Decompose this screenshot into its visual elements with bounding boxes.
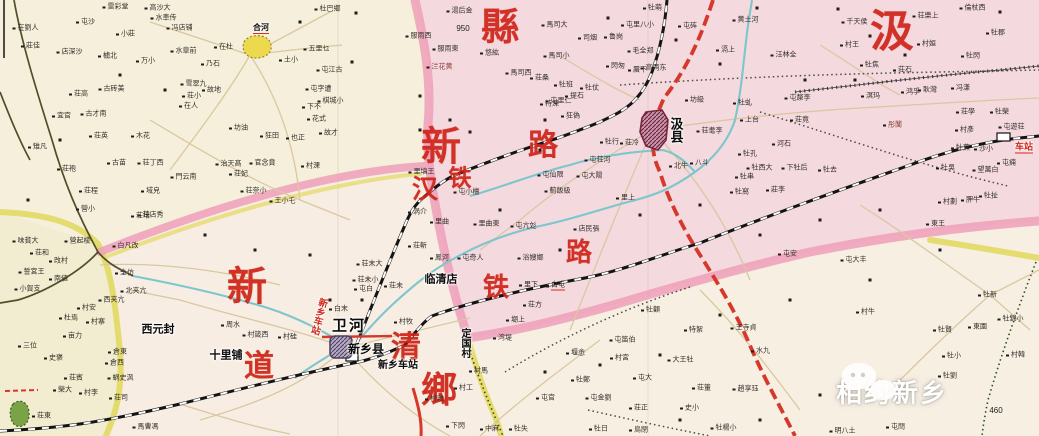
village-label: 故地 [207,87,221,94]
village-label: 牡孔 [743,151,757,158]
village-label: 村牧 [399,319,413,326]
village-label: 屯里八小 [626,22,654,29]
village-label: 大王牡 [673,357,694,364]
village-label: 屯笛伯 [615,337,636,344]
village-label: 古砖美 [104,86,125,93]
village-dot [544,371,547,374]
village-label: 村劃 [943,199,957,206]
village-label: 司烟 [583,35,597,42]
village-label: 荘高 [74,91,88,98]
place-label: 定国村 [459,328,469,358]
village-dot [164,89,167,92]
village-label: 望萬白 [978,167,999,174]
village-dot [329,299,332,302]
railway-county-big-label: 新 [421,127,461,167]
village-label: 荘桑 [535,75,549,82]
village-label: 湯后金 [452,8,473,15]
village-label: 西夹亢 [104,297,125,304]
village-dot [759,234,762,237]
village-label: 南値 [54,276,68,283]
village-dot [607,17,610,20]
village-label: 誓宮王 [24,269,45,276]
village-label: 牡顴 [646,307,660,314]
village-label: 牡小 [947,353,961,360]
village-dot [789,299,792,302]
village-label: 水車传 [156,15,177,22]
village-label: 也正 [291,135,305,142]
village-label: 牡扯 [984,193,998,200]
village-label: 在劉人 [18,25,39,32]
village-label: 㳕花黄 [432,64,453,71]
village-label: 故才 [324,130,338,137]
village-dot [869,279,872,282]
village-label: 古才南 [86,111,107,118]
railway-county-big-label: 道 [244,352,274,382]
village-label: 屯亢彣 [516,223,537,230]
railway-county-big-label: 縣 [481,9,519,47]
village-label: 店民張 [579,226,600,233]
village-label: 蜗史沨 [113,375,134,382]
village-dot [679,419,682,422]
historical-map: 縣汲新路铁汉路铁新清道鄉西元封十里铺卫河新乡县新乡车站临清店定国村汲县新乡车站车… [0,0,1039,436]
village-dot [699,204,702,207]
village-label: 服雨東 [438,46,459,53]
village-label: 提石 [570,93,584,100]
village-label: 牡串 [740,174,754,181]
village-label: 牡班 [559,82,573,89]
village-label: 村馬 [474,368,488,375]
village-label: 屯閆 [891,424,905,431]
village-label: 滆上 [721,47,735,54]
village-label: 水章前 [176,48,197,55]
village-label: 牡新 [983,292,997,299]
spot-height-label: 950 [456,25,469,33]
village-dot [544,119,547,122]
village-label: 域皃 [146,188,160,195]
place-label: 新乡车站 [308,296,327,335]
railway-county-big-label: 铁 [449,167,472,190]
village-label: 下閃 [451,423,465,430]
village-label: 屯大陽 [582,173,603,180]
village-label: 屯官 [541,395,555,402]
village-label: 倫杖西 [965,5,986,12]
village-dot [999,11,1002,14]
village-label: 史小 [685,405,699,412]
village-label: 村淉 [306,163,320,170]
village-label: 狂田 [265,133,279,140]
village-label: 趙享珏 [738,386,759,393]
railway-county-big-label: 鄉 [421,372,457,408]
railway-county-big-label: 路 [528,131,558,161]
village-dot [854,79,857,82]
village-label: 東園 [973,324,987,331]
village-dot [559,249,562,252]
village-label: 里填王 [414,169,435,176]
village-label: 牡錦小 [1003,316,1024,323]
village-label: 牡郡 [991,30,1005,37]
village-label: 溟玛 [866,93,880,100]
village-label: 村工 [459,385,473,392]
village-label: 東王 [931,221,945,228]
village-label: 屯奇人 [463,255,484,262]
village-dot [819,219,822,222]
village-label: 屯大丰 [846,257,867,264]
village-dot [719,314,722,317]
place-label: 卫河 [332,319,366,334]
village-label: 杜焉 [64,315,78,322]
village-label: 屯白 [359,286,373,293]
village-label: 黄土河 [738,17,759,24]
village-dot [299,21,302,24]
village-dot [351,61,354,64]
village-label: 冯店铺 [172,25,193,32]
village-label: 荘未 [389,283,403,290]
village-label: 万小 [141,58,155,65]
village-label: 汪林全 [776,52,797,59]
village-label: 荘妃 [234,171,248,178]
village-label: 彤闅 [888,122,902,129]
village-label: 屯仙限 [543,172,564,179]
village-label: 周水 [226,322,240,329]
village-label: 八斗 [695,160,709,167]
village-label: 牡閃 [966,53,980,60]
village-label: 屯江古 [322,67,343,74]
village-label: 湾堤 [498,335,512,342]
village-label: 棋城小 [323,98,344,105]
village-label: 荘冷 [625,140,639,147]
village-label: 乃石 [206,61,220,68]
village-label: 木花 [136,133,150,140]
village-label: 全仿 [120,270,134,277]
place-label: 西元封 [142,325,175,336]
village-dot [27,199,30,202]
village-label: 村韓 [1011,352,1025,359]
village-label: 村牛 [861,309,875,316]
village-label: 鳥閉 [634,427,648,434]
village-dot [59,139,62,142]
village-dot [499,209,502,212]
village-label: 下不 [307,104,321,111]
village-dot [819,394,822,397]
village-dot [361,299,364,302]
village-label: 牡吳 [941,165,955,172]
village-dot [309,254,312,257]
village-dot [254,249,257,252]
village-label: 宜官 [57,113,71,120]
village-label: 五里乜 [309,46,330,53]
village-label: 官念賁 [255,160,276,167]
village-label: 馬司大 [547,22,568,29]
village-label: 悠紘 [485,50,499,57]
village-label: 千天侯 [847,19,868,26]
village-label: 牡榮 [995,109,1009,116]
watermark: 相约新乡 [836,360,1038,422]
village-label: 里曲東 [479,221,500,228]
village-dot [804,79,807,82]
railway-county-big-label: 清 [391,333,421,363]
village-label: 閃匆 [611,63,625,70]
village-dot [869,35,872,38]
village-dot [419,129,422,132]
village-label: 古苗 [112,160,126,167]
village-label: 馬司小 [549,53,570,60]
village-label: 牡行 [605,139,619,146]
village-label: 牡窩 [735,189,749,196]
village-label: 牡鄭 [576,377,590,384]
village-label: 營小 [81,206,95,213]
village-label: 坊級 [690,97,704,104]
village-label: 牡萌 [648,5,662,12]
village-label: 坊油 [234,125,248,132]
village-label: 白凡改 [118,243,139,250]
village-dot [419,95,422,98]
village-label: 村姮 [922,41,936,48]
village-label: 雪翠九 [186,81,207,88]
railway-county-big-label: 路 [566,240,592,266]
village-dot [675,39,678,42]
village-label: 牡焦 [865,62,879,69]
village-label: 屯安 [783,251,797,258]
village-label: 薊飯級 [550,188,571,195]
village-label: 涡介 [413,209,427,216]
village-label: 杜巴鄉 [320,6,341,13]
village-label: 村箴西 [248,332,269,339]
village-label: 榮大 [58,387,72,394]
village-label: 村寨 [91,319,105,326]
village-label: 屯沙 [81,19,95,26]
village-label: 村宮 [615,355,629,362]
village-label: 冯溓 [956,85,970,92]
village-label: 攺村 [54,258,68,265]
village-label: 倉西 [110,360,124,367]
village-dot [879,209,882,212]
place-label: 新乡县 [348,343,384,355]
village-label: 牡日 [594,426,608,433]
village-label: 白屯 [551,282,565,291]
village-label: 荘英 [94,133,108,140]
village-label: 牡虬 [738,100,752,107]
village-label: 浴嫂嫏 [523,255,544,262]
village-label: 白末 [334,306,348,313]
village-label: 荘箽 [697,385,711,392]
village-label: 牡失 [514,426,528,433]
village-label: 荘和 [35,250,49,257]
village-label: 里上 [621,195,635,202]
village-label: 花式 [312,116,326,123]
village-label: 村王 [845,42,859,49]
village-label: 屯金劉 [591,395,612,402]
village-label: 里曲 [435,219,449,226]
village-label: 高沙大 [150,5,171,12]
village-label: 屯字遭 [311,86,332,93]
village-label: 村李 [84,390,98,397]
village-label: 荘斬 [413,243,427,250]
village-dot [539,149,542,152]
village-label: 屯小檀 [459,189,480,196]
place-label: 十里铺 [210,351,243,362]
village-label: 莊李 [771,187,785,194]
village-label: 服雨西 [411,33,432,40]
village-label: 荘小 [187,93,201,100]
village-label: 屯漦李 [790,95,811,102]
village-label: 門云南 [176,174,197,181]
railway-county-big-label: 汉 [412,177,438,203]
village-label: 倉東 [113,349,127,356]
village-label: 荘培 [136,213,150,220]
village-label: 水九 [756,348,770,355]
railway-county-big-label: 铁 [483,275,509,301]
village-label: 明八土 [835,428,856,435]
village-label: 土小 [284,57,298,64]
village-label: 村彥 [960,127,974,134]
village-label: 在人 [184,103,198,110]
village-dot [719,63,722,66]
village-dot [119,74,122,77]
village-label: 荘司 [114,395,128,402]
village-label: 莊佳 [26,43,40,50]
village-label: 馬司西 [511,70,532,77]
village-label: 荘石 [898,67,912,74]
village-label: 馬曹馮 [138,424,159,431]
village-label: 在杜 [219,44,233,51]
village-label: 㙟上 [511,317,525,324]
village-dot [659,354,662,357]
village-label: 荘竟 [795,117,809,124]
place-label: 汲县 [670,117,683,143]
village-label: 鲁岗 [609,34,623,41]
village-label: 荘學 [961,109,975,116]
village-label: 特絮 [689,327,703,334]
village-label: 三位 [23,343,37,350]
village-label: 堰悆 [571,350,585,357]
village-label: 荘奈小 [246,188,267,195]
village-label: 屯荘河 [590,157,611,164]
village-label: 荘末大 [362,261,383,268]
village-label: 荘樂上 [918,13,939,20]
village-label: 營起棱 [70,238,91,245]
place-label: 合河 [253,24,269,34]
railway-county-big-label: 新 [227,267,267,307]
village-label: 王小乇 [275,198,296,205]
village-label: 荘賓 [69,375,83,382]
village-dot [756,7,759,10]
village-label: 牡去 [823,167,837,174]
village-label: 牡蕉 [956,145,970,152]
village-label: 北牛 [674,163,688,170]
village-dot [939,249,942,252]
village-label: 鸿孚 [906,89,920,96]
village-label: 小莊 [121,31,135,38]
village-label: 屯遊荘 [1004,124,1025,131]
village-label: 耿灣 [923,87,937,94]
village-label: 荘耄李 [702,128,723,135]
wechat-bubbles-icon [836,360,898,410]
village-label: 村安 [82,305,96,312]
village-label: 狂偽 [566,113,580,120]
village-label: 店深沙 [62,49,83,56]
village-label: 牡楊小 [716,425,737,432]
village-label: 毛全郑 [633,48,654,55]
village-dot [449,119,452,122]
place-label: 车站 [1015,143,1033,154]
village-label: 史褒 [49,355,63,362]
village-label: 中麻 [485,426,499,433]
village-label: 沙小 [979,146,993,153]
village-label: 味貧大 [18,238,39,245]
village-label: 荘未小 [358,277,379,284]
village-label: 荘袍 [62,166,76,173]
village-label: 牡賢 [938,327,952,334]
village-dot [599,364,602,367]
village-label: 特淉 [545,101,559,108]
village-label: 荘丁西 [143,160,164,167]
village-label: 村攺 [430,396,444,403]
village-dot [904,54,907,57]
village-label: 里下 [524,282,538,289]
village-label: 高两东 [646,65,667,72]
village-label: 小賀支 [20,286,41,293]
village-label: 村硅 [283,334,297,341]
village-label: 治天髙 [221,161,242,168]
village-label: 雉凡 [33,144,47,151]
place-label: 临清店 [425,275,458,286]
village-label: 上台 [745,117,759,124]
village-label: 雷彩堂 [108,4,129,11]
village-label: 屯痈 [1002,160,1016,167]
village-dot [639,214,642,217]
village-label: 王寺貞 [736,325,757,332]
village-label: 鳯河 [435,255,449,262]
village-label: 牡西大 [752,165,773,172]
village-dot [469,131,472,134]
village-label: 荘方 [528,302,542,309]
village-label: 河石 [777,141,791,148]
village-dot [759,419,762,422]
village-dot [355,12,358,15]
village-label: 荘正 [634,405,648,412]
village-label: 屯大 [638,375,652,382]
village-label: 牡仗 [585,85,599,92]
village-label: 荘程 [84,188,98,195]
village-label: 屯砗 [683,23,697,30]
village-label: 胛牛 [966,197,980,204]
village-label: 荘東 [37,413,51,420]
village-dot [204,234,207,237]
village-label: 北夹亢 [126,288,147,295]
place-label: 新乡车站 [378,361,418,371]
village-label: 亩力 [68,333,82,340]
railway-county-big-label: 汲 [870,10,914,54]
village-label: 㯭北 [103,53,117,60]
village-dot [837,8,840,11]
village-label: 下牡后 [787,165,808,172]
